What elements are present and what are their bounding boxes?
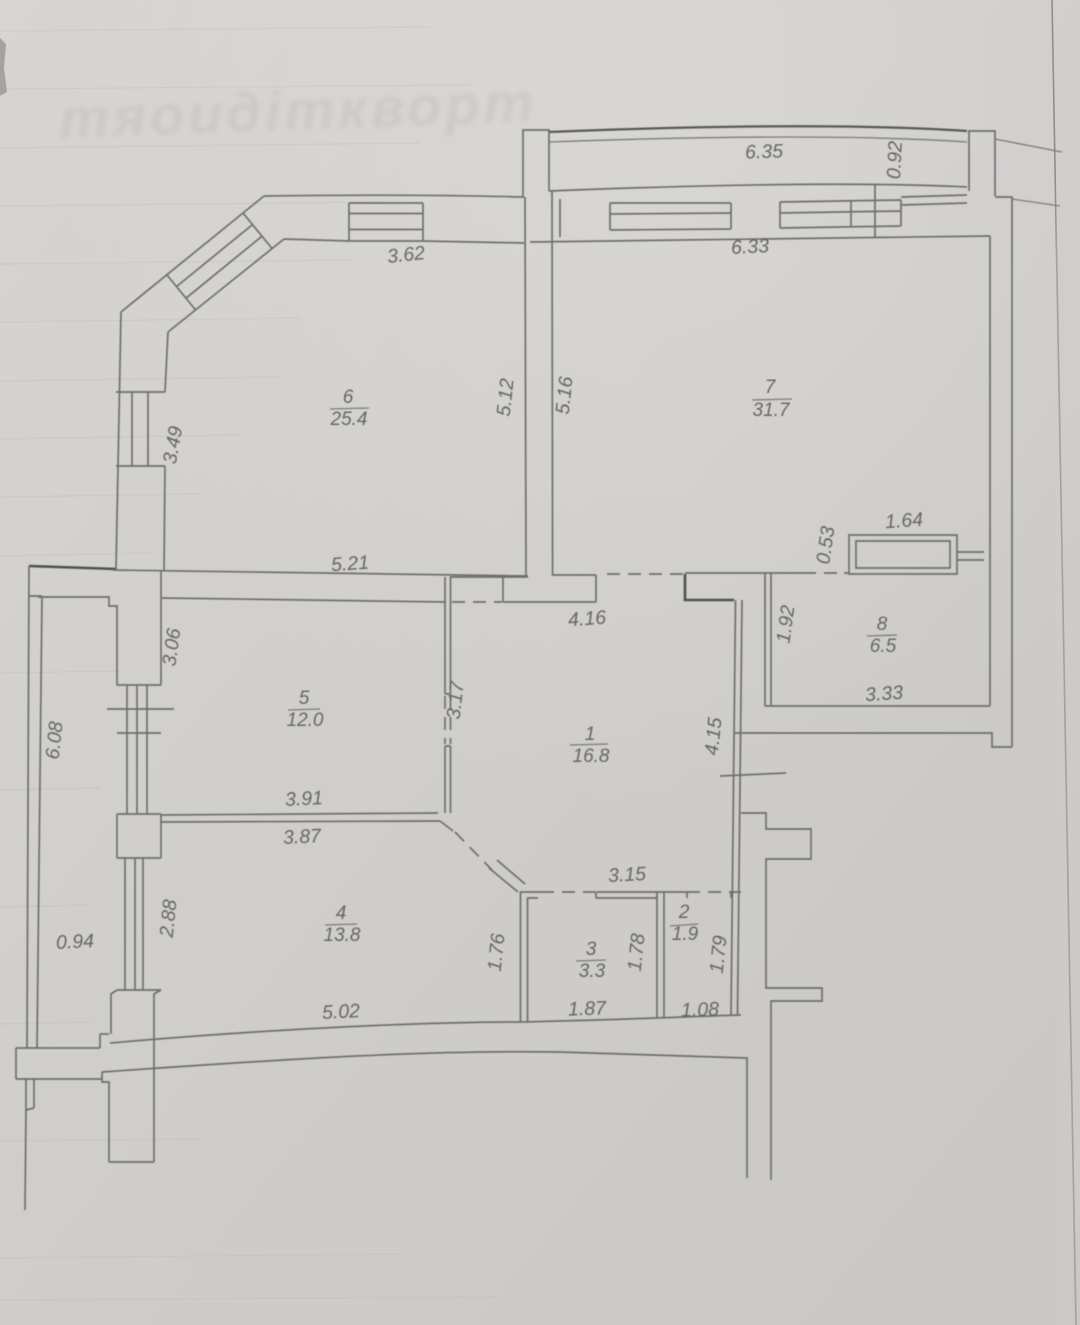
svg-text:1.76: 1.76 xyxy=(484,932,510,972)
svg-text:3.62: 3.62 xyxy=(386,242,426,268)
svg-text:5.16: 5.16 xyxy=(552,375,578,415)
svg-text:6.33: 6.33 xyxy=(731,235,770,259)
svg-text:8: 8 xyxy=(877,614,888,635)
svg-text:3.33: 3.33 xyxy=(864,682,904,707)
svg-text:3.91: 3.91 xyxy=(284,787,323,811)
svg-text:4: 4 xyxy=(336,903,347,924)
svg-text:3.3: 3.3 xyxy=(579,961,606,982)
svg-text:4.16: 4.16 xyxy=(567,607,607,632)
svg-text:0.94: 0.94 xyxy=(56,930,95,954)
svg-text:5.21: 5.21 xyxy=(330,552,369,577)
svg-text:13.8: 13.8 xyxy=(324,925,361,946)
svg-text:1.9: 1.9 xyxy=(672,924,699,945)
svg-text:6.08: 6.08 xyxy=(42,720,68,760)
svg-text:1.78: 1.78 xyxy=(624,932,650,972)
svg-text:5.12: 5.12 xyxy=(493,377,519,417)
svg-text:1: 1 xyxy=(585,724,596,745)
svg-text:6: 6 xyxy=(343,387,354,408)
svg-text:2: 2 xyxy=(678,902,690,923)
svg-text:16.8: 16.8 xyxy=(573,746,610,767)
svg-text:3.87: 3.87 xyxy=(282,825,322,849)
svg-text:6.35: 6.35 xyxy=(745,140,784,163)
svg-text:7: 7 xyxy=(765,377,777,398)
svg-text:6.5: 6.5 xyxy=(870,636,897,657)
svg-text:5: 5 xyxy=(299,688,310,709)
svg-text:1.79: 1.79 xyxy=(706,934,732,974)
svg-text:25.4: 25.4 xyxy=(330,409,368,430)
svg-text:31.7: 31.7 xyxy=(753,400,791,421)
svg-text:1.64: 1.64 xyxy=(884,509,924,534)
svg-text:5.02: 5.02 xyxy=(321,1000,360,1024)
svg-text:4.15: 4.15 xyxy=(701,716,727,756)
svg-text:12.0: 12.0 xyxy=(287,710,324,731)
svg-text:1.87: 1.87 xyxy=(568,997,608,1020)
svg-text:3: 3 xyxy=(586,939,597,960)
svg-text:1.08: 1.08 xyxy=(681,998,720,1021)
svg-text:0.92: 0.92 xyxy=(883,140,907,179)
svg-text:3.15: 3.15 xyxy=(607,863,646,887)
svg-text:3.17: 3.17 xyxy=(443,679,469,720)
svg-text:2.88: 2.88 xyxy=(156,898,182,939)
